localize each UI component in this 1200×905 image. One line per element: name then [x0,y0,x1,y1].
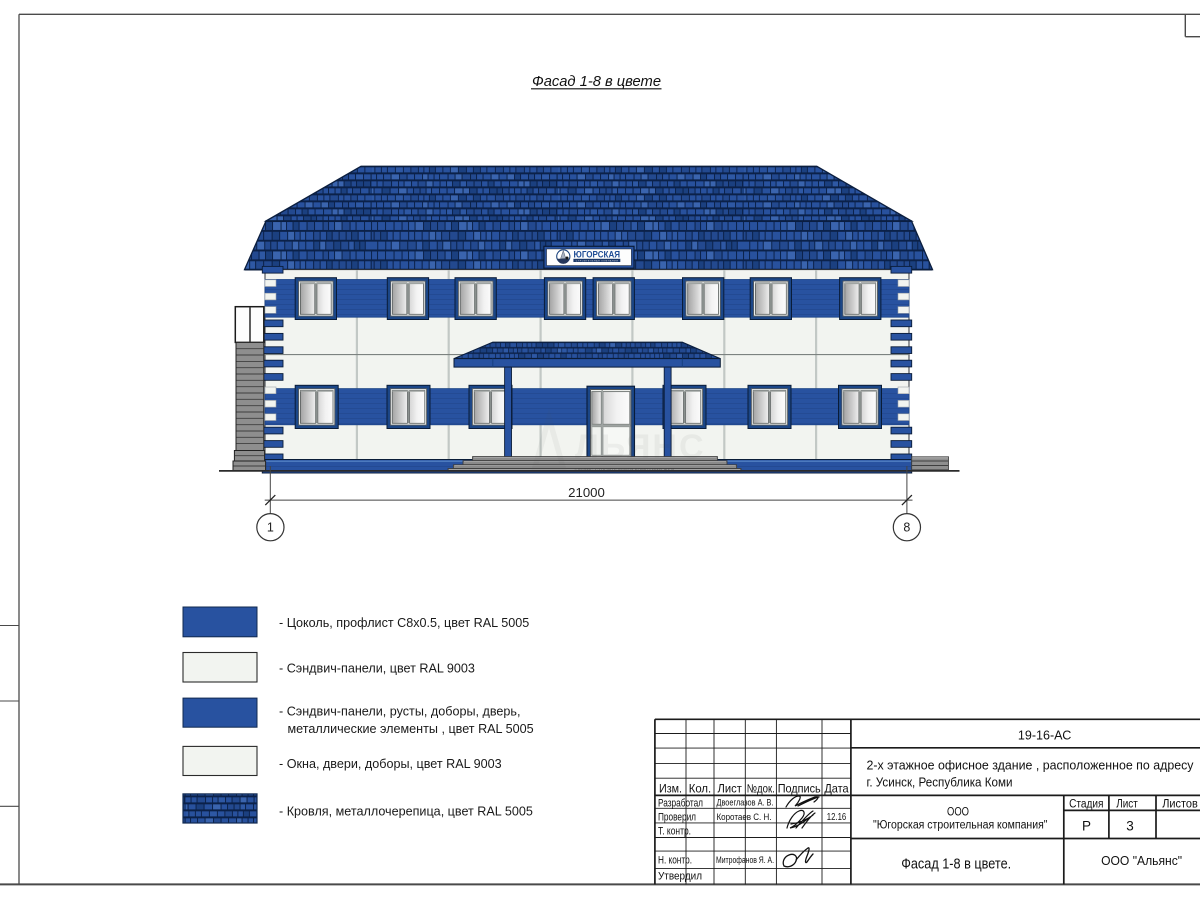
svg-text:Дата: Дата [824,781,849,795]
svg-text:2-х этажное офисное здание , р: 2-х этажное офисное здание , расположенн… [867,758,1194,773]
svg-text:Лист: Лист [1116,799,1138,811]
svg-text:СТРОИТЕЛЬНАЯ КОМПАНИЯ: СТРОИТЕЛЬНАЯ КОМПАНИЯ [576,259,618,262]
svg-text:Т. контр.: Т. контр. [658,826,691,838]
svg-text:ЮГОРСКАЯ: ЮГОРСКАЯ [574,250,621,260]
svg-text:Изм.: Изм. [659,781,682,795]
svg-text:Проверил: Проверил [658,812,696,824]
svg-text:- Цоколь, профлист С8х0.5, цве: - Цоколь, профлист С8х0.5, цвет RAL 5005 [279,616,529,630]
svg-text:ЛЬЯНС: ЛЬЯНС [575,428,706,466]
svg-text:металлические элементы , цвет: металлические элементы , цвет RAL 5005 [288,722,534,736]
svg-text:Утвердил: Утвердил [658,871,702,883]
svg-text:Фасад 1-8 в цвете: Фасад 1-8 в цвете [532,74,661,90]
svg-text:Разработал: Разработал [658,798,703,810]
svg-text:Двоеглазов А. В.: Двоеглазов А. В. [717,798,774,809]
svg-text:Подпись: Подпись [778,781,821,795]
svg-text:- Сэндвич-панели, русты, добор: - Сэндвич-панели, русты, доборы, дверь, [279,705,520,719]
svg-text:Листов: Листов [1162,799,1198,811]
svg-text:- Сэндвич-панели, цвет RAL 900: - Сэндвич-панели, цвет RAL 9003 [279,662,475,676]
svg-text:Лист: Лист [718,781,743,795]
svg-text:Стадия: Стадия [1069,799,1103,811]
svg-text:8: 8 [903,521,910,535]
svg-text:1: 1 [267,521,274,535]
svg-text:Митрофанов Я. А.: Митрофанов Я. А. [716,855,774,866]
svg-text:г. Усинск, Республика Коми: г. Усинск, Республика Коми [867,775,1013,790]
svg-text:12.16: 12.16 [827,811,847,823]
svg-text:Фасад 1-8 в цвете.: Фасад 1-8 в цвете. [901,856,1011,873]
svg-text:19-16-АС: 19-16-АС [1018,728,1072,743]
svg-text:Н. контр.: Н. контр. [658,855,692,867]
svg-text:Р: Р [1082,819,1091,834]
svg-text:- Кровля, металлочерепица, цве: - Кровля, металлочерепица, цвет RAL 5005 [279,805,533,819]
svg-text:"Югорская строительная компани: "Югорская строительная компания" [873,820,1048,832]
svg-text:ООО: ООО [947,807,969,819]
svg-text:Кол.: Кол. [689,781,711,795]
svg-text:Коротаев С. Н.: Коротаев С. Н. [717,812,772,823]
svg-text:ООО "Альянс": ООО "Альянс" [1101,853,1182,868]
svg-text:№док.: №док. [747,781,775,795]
svg-text:21000: 21000 [568,485,605,500]
svg-text:3: 3 [1126,819,1134,834]
svg-text:- Окна, двери, доборы, цвет RA: - Окна, двери, доборы, цвет RAL 9003 [279,757,502,771]
